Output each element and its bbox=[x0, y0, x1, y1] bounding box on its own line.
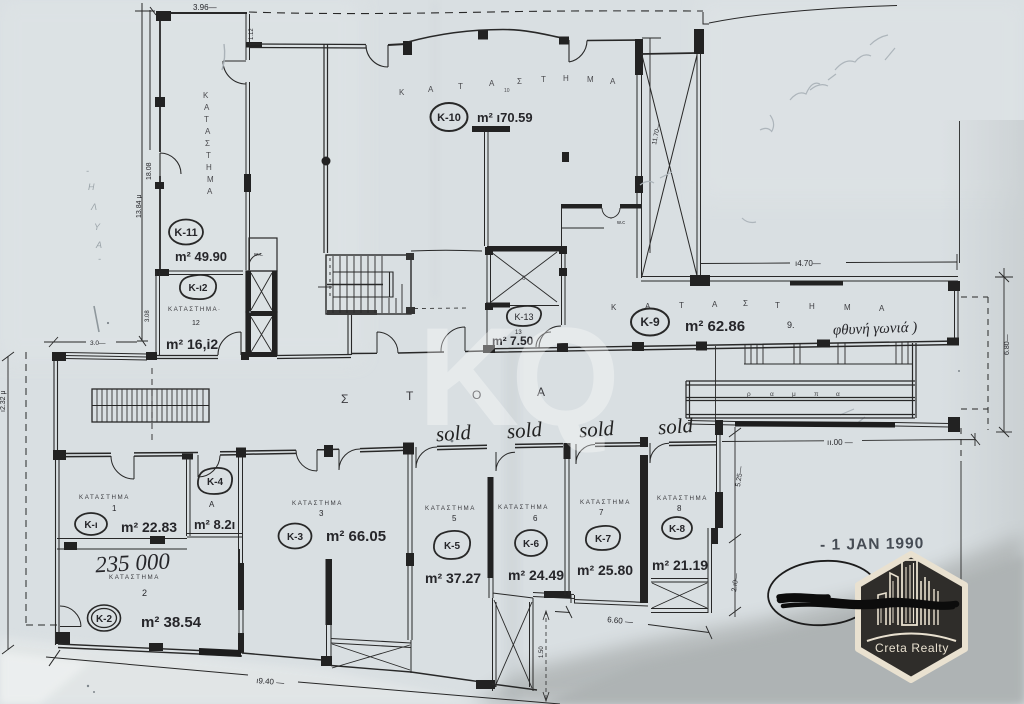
svg-text:1.12: 1.12 bbox=[249, 28, 255, 40]
svg-text:ΚΑΤΑΣΤΗΜΑ: ΚΑΤΑΣΤΗΜΑ bbox=[292, 500, 343, 507]
svg-text:K-6: K-6 bbox=[523, 539, 540, 550]
svg-text:Α: Α bbox=[209, 500, 215, 509]
svg-text:K-3: K-3 bbox=[287, 532, 304, 543]
svg-text:Η: Η bbox=[88, 182, 95, 192]
svg-text:Κ: Κ bbox=[203, 91, 209, 100]
svg-text:Α: Α bbox=[204, 103, 210, 112]
svg-text:ı4.70—: ı4.70— bbox=[795, 259, 821, 268]
svg-text:Λ: Λ bbox=[90, 202, 97, 212]
svg-text:Η: Η bbox=[206, 163, 212, 172]
svg-text:ΚΑΤΑΣΤΗΜΑ: ΚΑΤΑΣΤΗΜΑ bbox=[580, 499, 631, 506]
svg-text:Α: Α bbox=[205, 127, 211, 136]
svg-text:Σ: Σ bbox=[743, 299, 748, 308]
svg-text:6.60 ―: 6.60 ― bbox=[607, 615, 634, 627]
svg-text:m² 37.27: m² 37.27 bbox=[425, 570, 481, 586]
svg-text:Α: Α bbox=[207, 187, 213, 196]
svg-text:m² 62.86: m² 62.86 bbox=[685, 318, 745, 335]
svg-text:-: - bbox=[98, 254, 101, 264]
svg-text:- 1 JAN 1990: - 1 JAN 1990 bbox=[820, 535, 924, 554]
svg-text:m² 21.19: m² 21.19 bbox=[652, 557, 708, 573]
svg-text:6: 6 bbox=[522, 276, 526, 282]
svg-text:m² 49.90: m² 49.90 bbox=[175, 249, 227, 264]
svg-text:ı2.32 μ: ı2.32 μ bbox=[0, 390, 7, 412]
svg-text:ı9.40 ―: ı9.40 ― bbox=[256, 676, 285, 687]
svg-text:235 000: 235 000 bbox=[95, 548, 171, 577]
svg-text:1.50: 1.50 bbox=[539, 646, 545, 658]
svg-text:6: 6 bbox=[533, 514, 538, 523]
svg-text:Creta Realty: Creta Realty bbox=[875, 641, 949, 655]
svg-text:φθυνή γωνιά ): φθυνή γωνιά ) bbox=[833, 320, 918, 339]
svg-text:6.80―: 6.80― bbox=[1004, 334, 1011, 355]
svg-text:K-ı2: K-ı2 bbox=[189, 283, 208, 294]
svg-text:Α: Α bbox=[712, 300, 718, 309]
svg-text:K-7: K-7 bbox=[595, 534, 612, 545]
svg-text:K-11: K-11 bbox=[174, 227, 197, 239]
svg-text:m² 16,i2: m² 16,i2 bbox=[166, 336, 218, 352]
svg-text:Μ: Μ bbox=[844, 303, 851, 312]
svg-text:3.08: 3.08 bbox=[145, 310, 151, 322]
svg-text:ΚΑΤΑΣΤΗΜΑ·: ΚΑΤΑΣΤΗΜΑ· bbox=[168, 306, 221, 313]
svg-text:2.ı0―: 2.ı0― bbox=[731, 573, 741, 592]
svg-text:Α: Α bbox=[879, 304, 885, 313]
svg-text:m² ı70.59: m² ı70.59 bbox=[477, 110, 533, 125]
svg-text:Τ: Τ bbox=[679, 301, 684, 310]
svg-text:3: 3 bbox=[319, 509, 324, 518]
svg-text:Τ: Τ bbox=[206, 151, 211, 160]
svg-text:μ: μ bbox=[792, 391, 796, 398]
svg-text:ΚΑΤΑΣΤΗΜΑ: ΚΑΤΑΣΤΗΜΑ bbox=[79, 494, 130, 501]
svg-text:ΚΑΤΑΣΤΗΜΑ: ΚΑΤΑΣΤΗΜΑ bbox=[498, 504, 549, 511]
svg-text:10: 10 bbox=[504, 88, 510, 94]
svg-text:Σ: Σ bbox=[205, 139, 210, 148]
svg-text:8: 8 bbox=[677, 504, 682, 513]
svg-text:7: 7 bbox=[599, 508, 604, 517]
svg-text:9.: 9. bbox=[787, 320, 795, 330]
svg-text:Α: Α bbox=[610, 77, 616, 86]
svg-text:Μ: Μ bbox=[587, 75, 594, 84]
svg-text:2: 2 bbox=[142, 588, 147, 598]
svg-text:K-9: K-9 bbox=[640, 315, 660, 329]
svg-text:Η: Η bbox=[809, 302, 815, 311]
svg-text:3.0―: 3.0― bbox=[90, 340, 106, 347]
svg-text:ıı.00 ―: ıı.00 ― bbox=[827, 438, 853, 447]
svg-text:sold: sold bbox=[657, 413, 694, 439]
svg-text:Μ: Μ bbox=[207, 175, 214, 184]
svg-text:K-5: K-5 bbox=[444, 541, 461, 552]
svg-text:ΚΑΤΑΣΤΗΜΑ: ΚΑΤΑΣΤΗΜΑ bbox=[657, 495, 708, 502]
svg-text:α: α bbox=[770, 391, 774, 398]
svg-text:Τ: Τ bbox=[458, 82, 463, 91]
svg-text:11.70―: 11.70― bbox=[651, 122, 663, 146]
svg-text:Η: Η bbox=[563, 74, 569, 83]
svg-text:Σ: Σ bbox=[341, 392, 348, 406]
svg-text:Κ: Κ bbox=[399, 88, 405, 97]
svg-text:m² 38.54: m² 38.54 bbox=[141, 614, 202, 631]
svg-text:3.96—: 3.96— bbox=[193, 3, 217, 12]
svg-text:K-4: K-4 bbox=[207, 477, 224, 488]
svg-text:m² 24.49: m² 24.49 bbox=[508, 567, 564, 583]
svg-text:Τ: Τ bbox=[541, 75, 546, 84]
svg-text:Α: Α bbox=[428, 85, 434, 94]
svg-text:-: - bbox=[86, 166, 89, 176]
svg-text:ρ: ρ bbox=[747, 391, 751, 398]
svg-text:Τ: Τ bbox=[204, 115, 209, 124]
svg-text:π: π bbox=[814, 391, 819, 398]
svg-text:ΚΑΤΑΣΤΗΜΑ: ΚΑΤΑΣΤΗΜΑ bbox=[425, 505, 476, 512]
svg-text:m² 8.2ı: m² 8.2ı bbox=[194, 517, 235, 532]
svg-text:w.c.: w.c. bbox=[253, 252, 264, 258]
svg-text:K-2: K-2 bbox=[96, 614, 113, 625]
svg-text:Υ: Υ bbox=[94, 222, 101, 232]
svg-text:Α: Α bbox=[95, 240, 102, 250]
svg-text:K-ı: K-ı bbox=[84, 520, 98, 531]
svg-text:Σ: Σ bbox=[517, 77, 522, 86]
svg-text:α: α bbox=[836, 391, 840, 398]
svg-text:K-10: K-10 bbox=[437, 112, 461, 124]
svg-text:m² 25.80: m² 25.80 bbox=[577, 562, 633, 578]
svg-text:18.08: 18.08 bbox=[146, 162, 153, 180]
svg-text:ΚΑΤΑΣΤΗΜΑ: ΚΑΤΑΣΤΗΜΑ bbox=[109, 574, 160, 581]
svg-text:w.c: w.c bbox=[616, 220, 625, 226]
svg-text:KQ: KQ bbox=[418, 298, 615, 455]
svg-text:Τ: Τ bbox=[775, 301, 780, 310]
svg-text:5: 5 bbox=[452, 514, 457, 523]
svg-text:m² 22.83: m² 22.83 bbox=[121, 519, 177, 535]
svg-text:Τ: Τ bbox=[406, 389, 414, 403]
svg-text:5.25―: 5.25― bbox=[735, 466, 745, 487]
svg-text:K-8: K-8 bbox=[669, 524, 686, 535]
svg-text:1: 1 bbox=[112, 504, 117, 513]
svg-text:13.84 μ: 13.84 μ bbox=[136, 195, 143, 219]
svg-text:m² 66.05: m² 66.05 bbox=[326, 528, 386, 545]
svg-text:12: 12 bbox=[192, 320, 200, 327]
svg-text:Α: Α bbox=[489, 79, 495, 88]
